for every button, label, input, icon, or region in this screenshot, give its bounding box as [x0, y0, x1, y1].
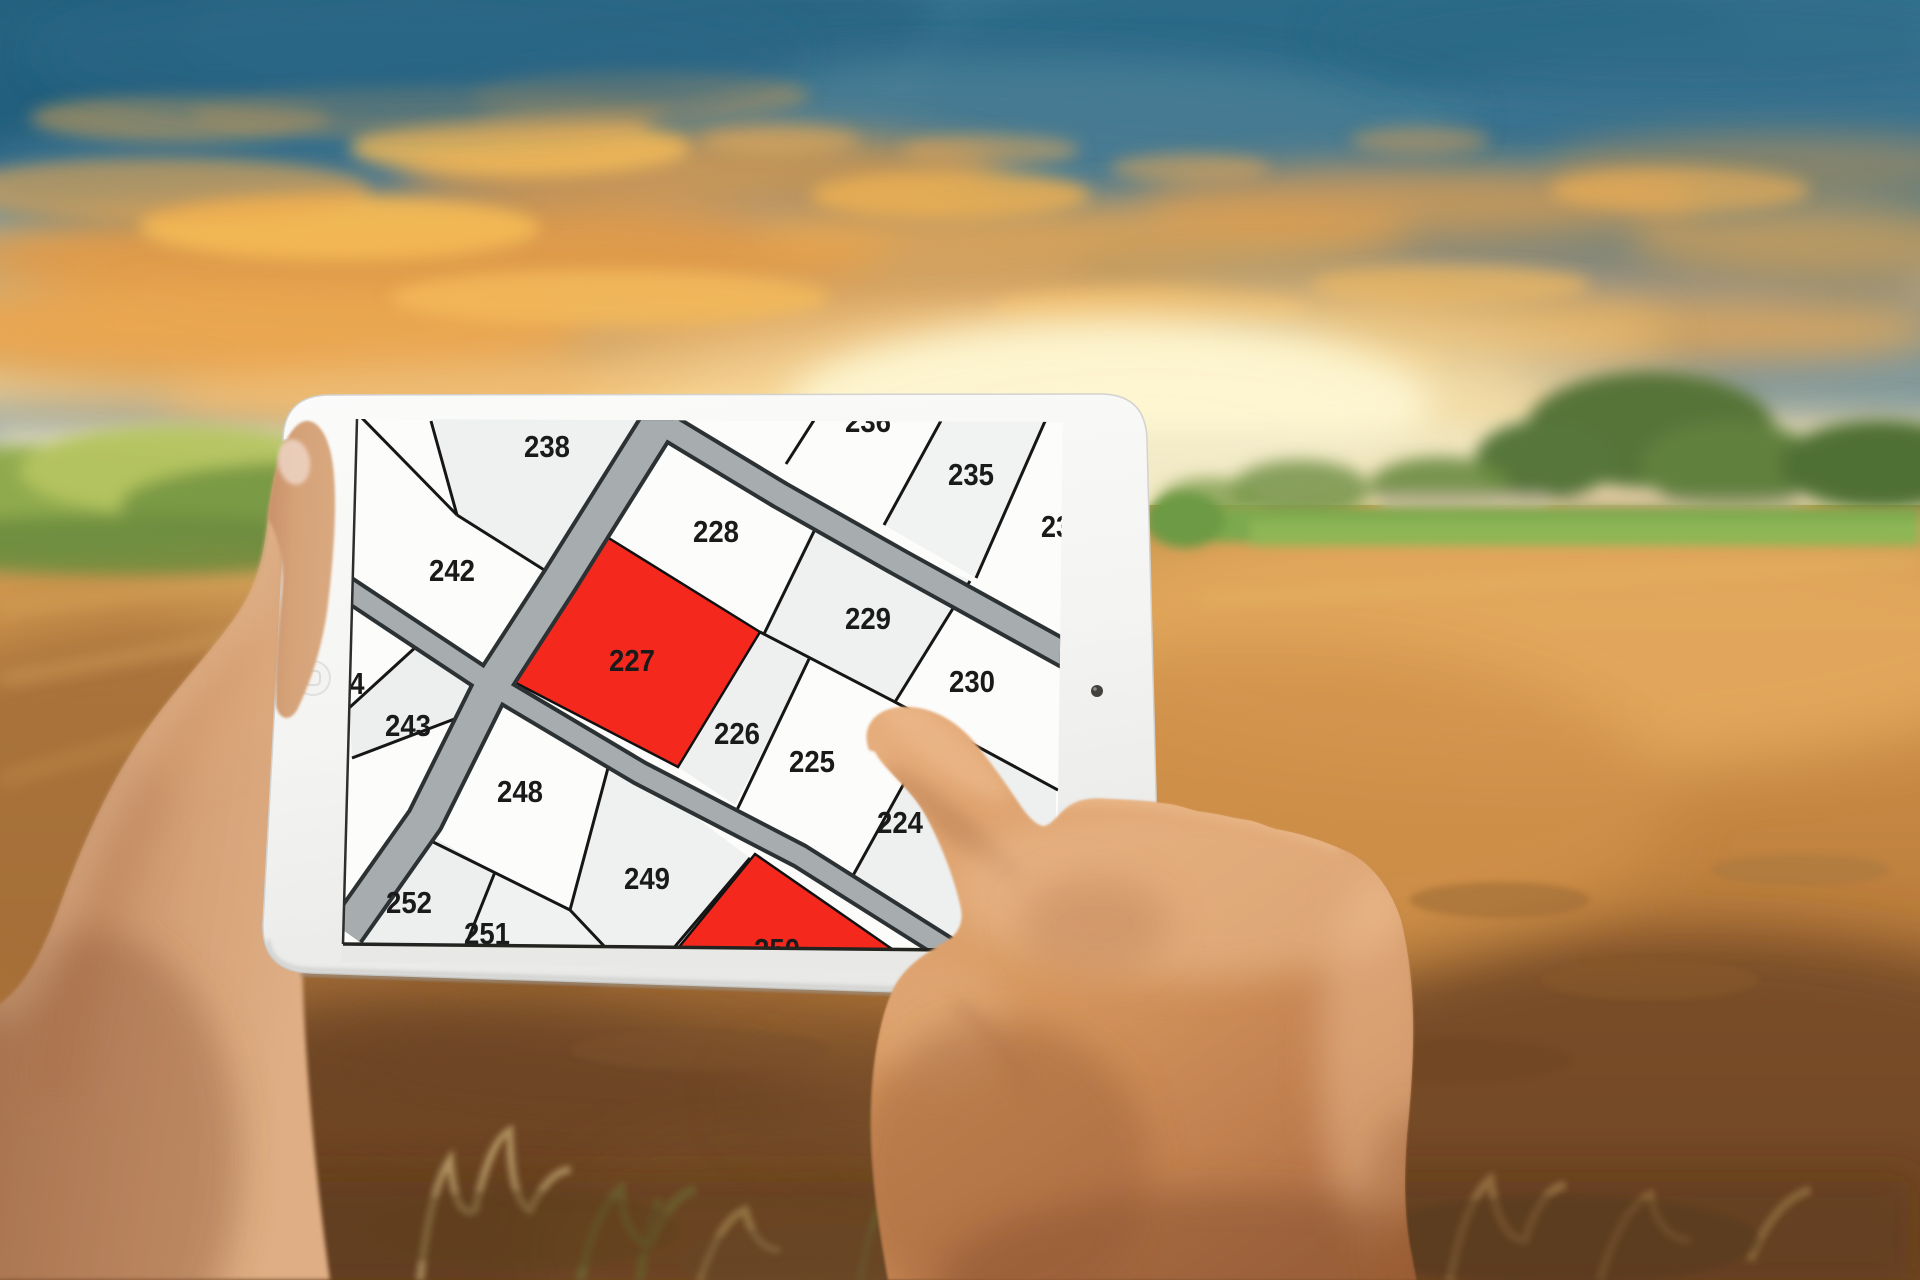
svg-text:224: 224	[877, 805, 924, 840]
svg-text:225: 225	[789, 744, 835, 779]
svg-text:229: 229	[845, 601, 891, 636]
svg-text:4: 4	[350, 666, 366, 701]
svg-text:226: 226	[714, 716, 760, 751]
svg-text:228: 228	[693, 514, 739, 549]
svg-text:227: 227	[609, 643, 655, 678]
svg-text:248: 248	[497, 774, 543, 809]
svg-text:252: 252	[386, 885, 432, 920]
svg-text:249: 249	[624, 861, 670, 896]
svg-text:242: 242	[429, 553, 475, 588]
svg-text:235: 235	[948, 457, 994, 492]
svg-text:238: 238	[524, 429, 570, 464]
svg-text:243: 243	[385, 708, 431, 743]
svg-text:230: 230	[949, 664, 995, 699]
